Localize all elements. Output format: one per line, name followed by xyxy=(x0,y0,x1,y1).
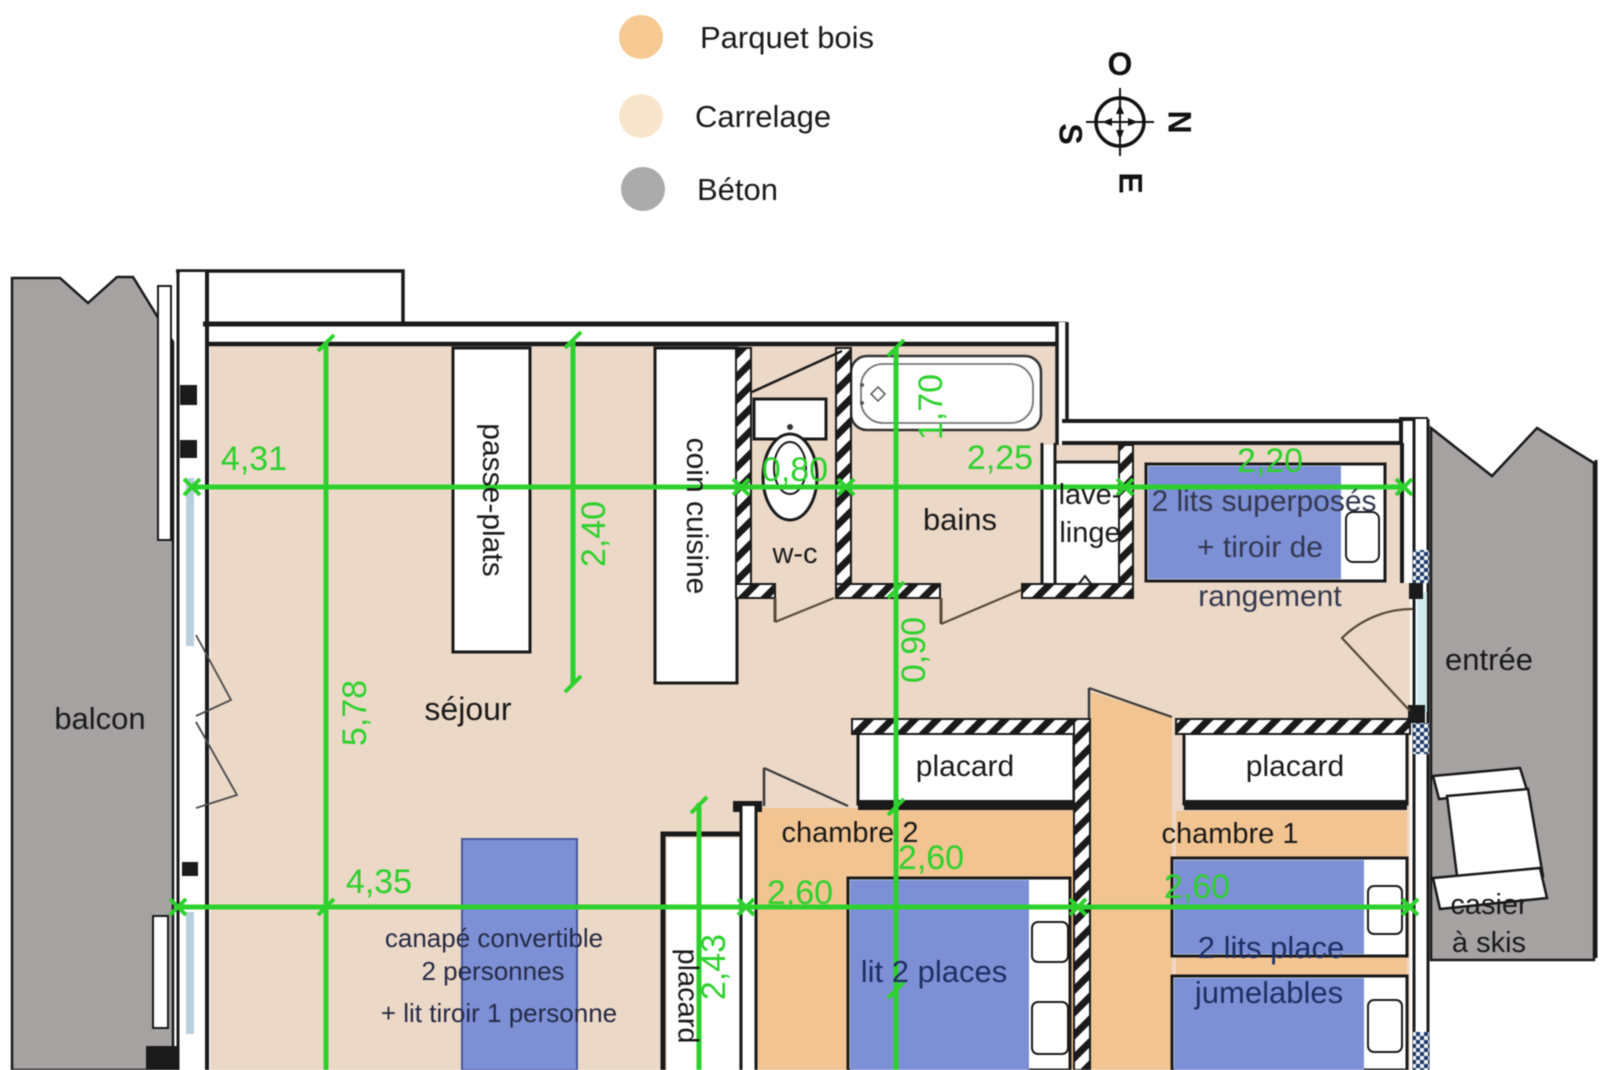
svg-text:coin cuisine: coin cuisine xyxy=(680,438,713,595)
svg-text:placard: placard xyxy=(671,948,703,1043)
svg-text:2 personnes: 2 personnes xyxy=(421,956,564,986)
svg-text:1,70: 1,70 xyxy=(912,374,950,440)
svg-text:2,25: 2,25 xyxy=(967,439,1033,477)
svg-text:à skis: à skis xyxy=(1452,927,1526,959)
svg-text:0,80: 0,80 xyxy=(762,451,828,489)
svg-text:Parquet bois: Parquet bois xyxy=(700,20,874,55)
svg-text:S: S xyxy=(1053,123,1089,144)
svg-text:balcon: balcon xyxy=(54,701,145,736)
svg-text:2 lits place: 2 lits place xyxy=(1198,930,1344,965)
svg-text:Béton: Béton xyxy=(697,172,778,207)
svg-text:séjour: séjour xyxy=(424,691,512,727)
svg-text:chambre 2: chambre 2 xyxy=(781,817,918,849)
svg-text:2,40: 2,40 xyxy=(575,501,613,567)
svg-text:placard: placard xyxy=(916,750,1014,783)
svg-text:w-c: w-c xyxy=(771,538,817,570)
svg-text:chambre 1: chambre 1 xyxy=(1161,818,1298,850)
svg-text:canapé convertible: canapé convertible xyxy=(385,923,603,953)
svg-text:E: E xyxy=(1113,172,1149,193)
svg-text:lave-: lave- xyxy=(1059,479,1122,511)
svg-text:jumelables: jumelables xyxy=(1194,975,1343,1010)
svg-text:lit 2 places: lit 2 places xyxy=(861,954,1007,989)
svg-text:5,78: 5,78 xyxy=(336,680,374,746)
svg-text:2,20: 2,20 xyxy=(1237,442,1303,480)
svg-text:Carrelage: Carrelage xyxy=(695,99,831,134)
svg-text:2,60: 2,60 xyxy=(1164,868,1230,906)
svg-text:2 lits superposés: 2 lits superposés xyxy=(1151,485,1376,518)
svg-text:2,60: 2,60 xyxy=(767,874,833,912)
svg-text:4,31: 4,31 xyxy=(221,440,287,478)
svg-text:4,35: 4,35 xyxy=(346,863,412,901)
svg-text:+ tiroir de: + tiroir de xyxy=(1197,531,1323,564)
svg-text:casier: casier xyxy=(1450,889,1528,921)
svg-text:linge: linge xyxy=(1059,517,1120,549)
svg-text:rangement: rangement xyxy=(1198,580,1342,613)
svg-text:+ lit tiroir 1 personne: + lit tiroir 1 personne xyxy=(381,998,617,1028)
svg-text:O: O xyxy=(1108,46,1133,82)
svg-text:placard: placard xyxy=(1246,750,1344,783)
svg-text:entrée: entrée xyxy=(1445,642,1533,677)
svg-text:N: N xyxy=(1162,110,1198,133)
svg-text:passe-plats: passe-plats xyxy=(476,423,509,576)
svg-text:bains: bains xyxy=(923,502,997,537)
svg-text:0,90: 0,90 xyxy=(895,617,933,683)
